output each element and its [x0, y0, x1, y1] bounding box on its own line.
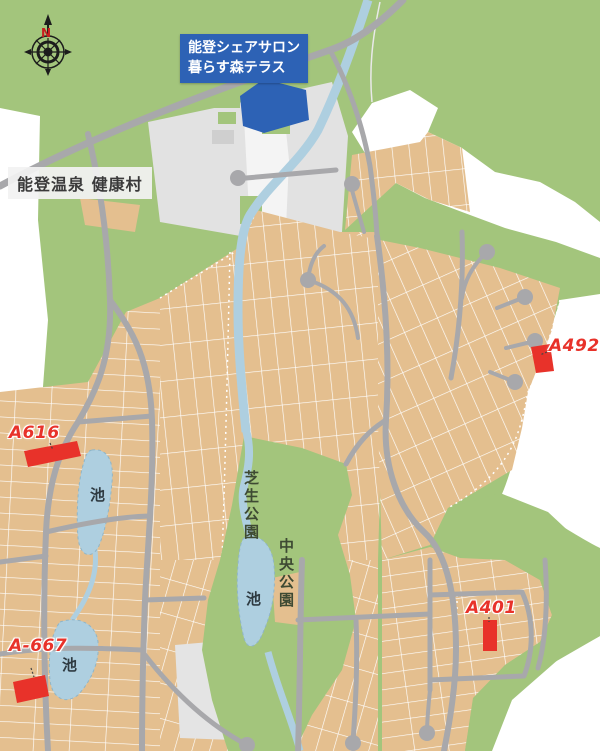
map-svg	[0, 0, 600, 751]
salon-callout[interactable]: 能登シェアサロン 暮らす森テラス	[180, 34, 308, 83]
pond-label-west: 池	[90, 484, 105, 505]
cul-de-sac-dot	[479, 244, 495, 260]
salon-callout-line1: 能登シェアサロン	[188, 38, 300, 58]
road-south-vertical	[298, 560, 302, 751]
lot-label-a616[interactable]: A616	[9, 423, 60, 443]
salon-callout-line2: 暮らす森テラス	[188, 58, 300, 78]
park-label-lawn: 芝生公園	[241, 470, 262, 542]
park-label-central: 中央公園	[276, 538, 297, 610]
cul-de-sac-dot	[517, 289, 533, 305]
cul-de-sac-dot	[507, 374, 523, 390]
road-connector-5	[145, 598, 204, 600]
cul-de-sac-dot	[230, 170, 246, 186]
subdivision-map: N 能登シェアサロン 暮らす森テラス 能登温泉 健康村 芝生公園 中央公園 池 …	[0, 0, 600, 751]
pond-label-southwest: 池	[62, 654, 77, 675]
facility-building	[212, 130, 234, 144]
lot-label-a667[interactable]: A-667	[9, 636, 67, 656]
cul-de-sac-dot	[345, 735, 361, 751]
cul-de-sac-dot	[419, 725, 435, 741]
lot-label-a492-9[interactable]: A492-9	[549, 336, 600, 356]
lot-label-a401[interactable]: A401	[466, 598, 517, 618]
cul-de-sac-dot	[300, 272, 316, 288]
lot-marker-a401[interactable]	[483, 620, 497, 651]
facility-green-2	[218, 112, 236, 124]
compass-north-label: N	[41, 26, 51, 40]
facility-green-1	[208, 94, 240, 108]
cul-de-sac-dot	[344, 176, 360, 192]
pond-label-central: 池	[246, 588, 261, 609]
facility-callout: 能登温泉 健康村	[8, 167, 152, 199]
